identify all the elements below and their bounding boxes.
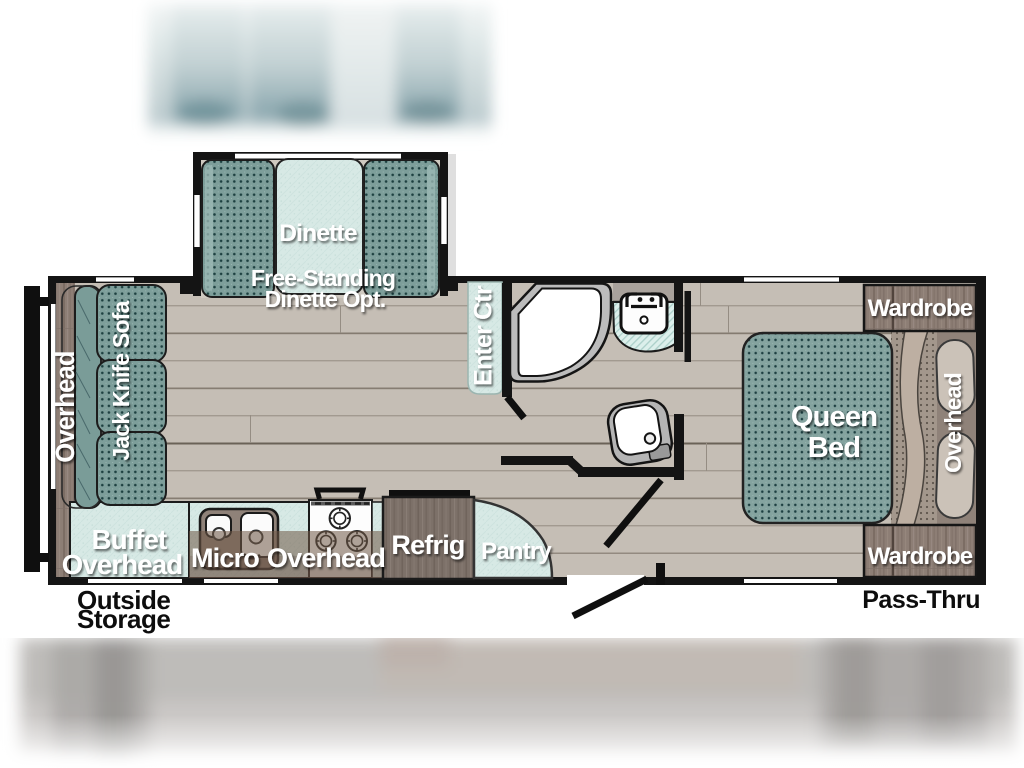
svg-text:Micro: Micro (191, 543, 259, 573)
svg-text:Overhead: Overhead (62, 549, 182, 580)
svg-text:Overhead: Overhead (940, 373, 966, 473)
svg-text:Dinette: Dinette (279, 220, 357, 247)
svg-text:Enter Ctr: Enter Ctr (470, 285, 498, 386)
svg-text:Overhead: Overhead (267, 543, 385, 573)
svg-text:Wardrobe: Wardrobe (868, 295, 973, 322)
svg-text:Overhead: Overhead (52, 351, 80, 462)
svg-text:Wardrobe: Wardrobe (868, 543, 973, 570)
svg-text:Pass-Thru: Pass-Thru (862, 586, 980, 614)
svg-text:Refrig: Refrig (391, 530, 464, 560)
svg-text:Storage: Storage (77, 604, 170, 634)
svg-text:Queen: Queen (791, 401, 877, 433)
svg-text:Pantry: Pantry (481, 538, 552, 565)
svg-text:Dinette Opt.: Dinette Opt. (265, 286, 386, 312)
svg-text:Jack Knife Sofa: Jack Knife Sofa (108, 300, 134, 460)
svg-text:Bed: Bed (808, 432, 860, 464)
